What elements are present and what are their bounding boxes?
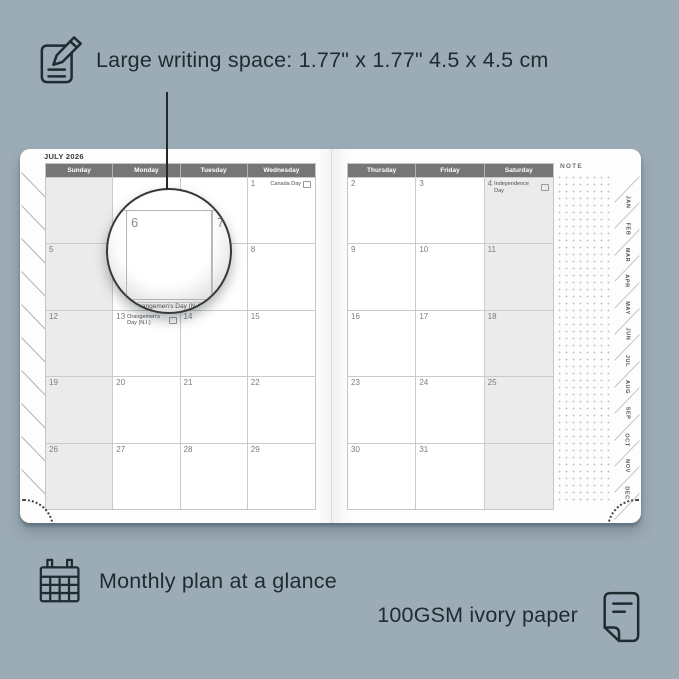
calendar-cell: 5 bbox=[46, 243, 113, 309]
month-tab-aug: AUG bbox=[613, 374, 641, 400]
date-number: 17 bbox=[419, 313, 428, 322]
left-tab-mark bbox=[21, 238, 47, 265]
month-tab-label: JUL bbox=[624, 354, 630, 366]
date-number: 2 bbox=[351, 180, 355, 189]
magnified-holiday: 13 Orangemen's Day (N.I.) bbox=[108, 303, 230, 310]
calendar-cell: 3 bbox=[416, 177, 484, 243]
note-label: NOTE bbox=[560, 163, 583, 170]
holiday-text: Canada Day bbox=[270, 181, 301, 188]
calendar-cell: 17 bbox=[416, 310, 484, 376]
calendar-cell: 25 bbox=[485, 376, 553, 442]
date-number: 31 bbox=[419, 446, 428, 455]
writing-space-outline bbox=[126, 210, 212, 300]
left-tab-mark bbox=[21, 271, 47, 298]
month-tab-sep: SEP bbox=[613, 400, 641, 426]
calendar-cell: 29 bbox=[248, 443, 315, 509]
calendar-cell: 19 bbox=[46, 376, 113, 442]
calendar-cell: 30 bbox=[348, 443, 416, 509]
month-tab-label: JUN bbox=[624, 328, 630, 341]
left-tab-mark bbox=[21, 469, 47, 496]
holiday-text: Orangemen's Day (N.I.) bbox=[127, 314, 166, 327]
day-header: Tuesday bbox=[181, 164, 248, 177]
calendar-cell bbox=[485, 443, 553, 509]
month-title: JULY 2026 bbox=[44, 152, 84, 161]
magnified-date-6: 6 bbox=[131, 215, 138, 230]
left-tab-mark bbox=[21, 436, 47, 463]
date-number: 9 bbox=[351, 246, 355, 255]
date-number: 21 bbox=[184, 379, 193, 388]
holiday-label: Orangemen's Day (N.I.) bbox=[127, 314, 176, 327]
month-tab-apr: APR bbox=[613, 268, 641, 294]
right-calendar-grid: ThursdayFridaySaturday234Independence Da… bbox=[347, 163, 554, 510]
spine-shading bbox=[318, 149, 348, 523]
date-number: 26 bbox=[49, 446, 58, 455]
calendar-cell: 8 bbox=[248, 243, 315, 309]
date-number: 20 bbox=[116, 379, 125, 388]
calendar-cell: 13Orangemen's Day (N.I.) bbox=[113, 310, 180, 376]
writing-space-annotation: Large writing space: 1.77" x 1.77" 4.5 x… bbox=[38, 34, 549, 86]
date-number: 23 bbox=[351, 379, 360, 388]
calendar-cell bbox=[46, 177, 113, 243]
left-tab-mark bbox=[21, 304, 47, 331]
calendar-cell: 31 bbox=[416, 443, 484, 509]
day-header: Saturday bbox=[485, 164, 553, 177]
holiday-flag-box bbox=[541, 184, 549, 191]
calendar-grid-icon bbox=[38, 558, 85, 605]
date-number: 5 bbox=[49, 246, 53, 255]
month-tab-jan: JAN bbox=[613, 189, 641, 215]
date-number: 18 bbox=[488, 313, 497, 322]
day-header: Thursday bbox=[348, 164, 416, 177]
calendar-cell: 24 bbox=[416, 376, 484, 442]
calendar-cell: 16 bbox=[348, 310, 416, 376]
date-number: 29 bbox=[251, 446, 260, 455]
pencil-note-icon bbox=[38, 34, 86, 86]
callout-line bbox=[166, 92, 168, 189]
magnified-column-line bbox=[212, 210, 213, 302]
date-number: 28 bbox=[184, 446, 193, 455]
month-tab-jun: JUN bbox=[613, 321, 641, 347]
left-tab-mark bbox=[21, 337, 47, 364]
month-tab-nov: NOV bbox=[613, 453, 641, 479]
calendar-cell: 23 bbox=[348, 376, 416, 442]
note-dot-grid bbox=[556, 174, 613, 504]
month-tab-may: MAY bbox=[613, 295, 641, 321]
day-header: Sunday bbox=[46, 164, 113, 177]
planner-spread: JULY 2026 SundayMondayTuesdayWednesday1C… bbox=[20, 149, 641, 523]
spine-line bbox=[331, 149, 332, 523]
calendar-cell: 12 bbox=[46, 310, 113, 376]
calendar-cell: 14 bbox=[181, 310, 248, 376]
calendar-cell: 9 bbox=[348, 243, 416, 309]
calendar-cell: 27 bbox=[113, 443, 180, 509]
month-tab-label: FEB bbox=[624, 222, 630, 235]
month-tab-label: AUG bbox=[624, 380, 630, 394]
calendar-cell: 20 bbox=[113, 376, 180, 442]
holiday-label: Independence Day bbox=[494, 181, 550, 194]
date-number: 11 bbox=[488, 246, 496, 255]
date-number: 15 bbox=[251, 313, 260, 322]
calendar-cell: 18 bbox=[485, 310, 553, 376]
magnified-date-13: 13 bbox=[124, 303, 132, 310]
date-number: 13 bbox=[116, 313, 125, 322]
paper-icon bbox=[598, 590, 642, 644]
date-number: 14 bbox=[184, 313, 193, 322]
calendar-cell: 22 bbox=[248, 376, 315, 442]
calendar-cell: 21 bbox=[181, 376, 248, 442]
date-number: 24 bbox=[419, 379, 428, 388]
month-tab-oct: OCT bbox=[613, 427, 641, 453]
month-tab-jul: JUL bbox=[613, 347, 641, 373]
calendar-cell: 1Canada Day bbox=[248, 177, 315, 243]
calendar-cell: 26 bbox=[46, 443, 113, 509]
calendar-cell: 10 bbox=[416, 243, 484, 309]
calendar-cell: 11 bbox=[485, 243, 553, 309]
calendar-cell: 28 bbox=[181, 443, 248, 509]
date-number: 25 bbox=[488, 379, 497, 388]
date-number: 4 bbox=[488, 180, 492, 189]
monthly-plan-text: Monthly plan at a glance bbox=[99, 569, 337, 594]
month-tab-label: NOV bbox=[624, 459, 630, 473]
left-tab-mark bbox=[21, 403, 47, 430]
month-tab-mar: MAR bbox=[613, 242, 641, 268]
writing-space-text: Large writing space: 1.77" x 1.77" 4.5 x… bbox=[96, 48, 549, 73]
holiday-flag-box bbox=[169, 317, 177, 324]
day-header: Wednesday bbox=[248, 164, 315, 177]
magnified-date-7: 7 bbox=[217, 215, 224, 230]
product-image: Large writing space: 1.77" x 1.77" 4.5 x… bbox=[0, 0, 679, 679]
day-header: Monday bbox=[113, 164, 180, 177]
month-tab-label: DEC bbox=[624, 486, 630, 499]
date-number: 3 bbox=[419, 180, 423, 189]
date-number: 10 bbox=[419, 246, 428, 255]
month-tab-feb: FEB bbox=[613, 215, 641, 241]
calendar-cell: 2 bbox=[348, 177, 416, 243]
holiday-flag-box bbox=[303, 181, 311, 188]
month-tab-label: MAY bbox=[624, 301, 630, 315]
month-tab-label: SEP bbox=[624, 407, 630, 420]
paper-text: 100GSM ivory paper bbox=[0, 603, 578, 628]
calendar-cell: 15 bbox=[248, 310, 315, 376]
holiday-label: Canada Day bbox=[270, 181, 312, 188]
date-number: 1 bbox=[251, 180, 255, 189]
date-number: 22 bbox=[251, 379, 260, 388]
date-number: 27 bbox=[116, 446, 125, 455]
date-number: 30 bbox=[351, 446, 360, 455]
month-tab-label: MAR bbox=[624, 248, 630, 262]
left-tab-mark bbox=[21, 172, 47, 199]
holiday-flag-box bbox=[206, 303, 214, 310]
date-number: 19 bbox=[49, 379, 58, 388]
calendar-cell: 4Independence Day bbox=[485, 177, 553, 243]
date-number: 12 bbox=[49, 313, 58, 322]
month-tab-label: APR bbox=[624, 275, 630, 288]
month-tab-label: OCT bbox=[624, 433, 630, 446]
month-tab-label: JAN bbox=[624, 196, 630, 209]
date-number: 16 bbox=[351, 313, 360, 322]
magnifier-circle: 6 7 13 Orangemen's Day (N.I.) bbox=[106, 188, 232, 314]
date-number: 8 bbox=[251, 246, 255, 255]
left-tab-mark bbox=[21, 205, 47, 232]
day-header: Friday bbox=[416, 164, 484, 177]
holiday-text: Independence Day bbox=[494, 181, 539, 194]
magnified-holiday-text: Orangemen's Day (N.I.) bbox=[135, 303, 203, 310]
monthly-plan-annotation: Monthly plan at a glance bbox=[38, 558, 337, 605]
left-tab-mark bbox=[21, 370, 47, 397]
